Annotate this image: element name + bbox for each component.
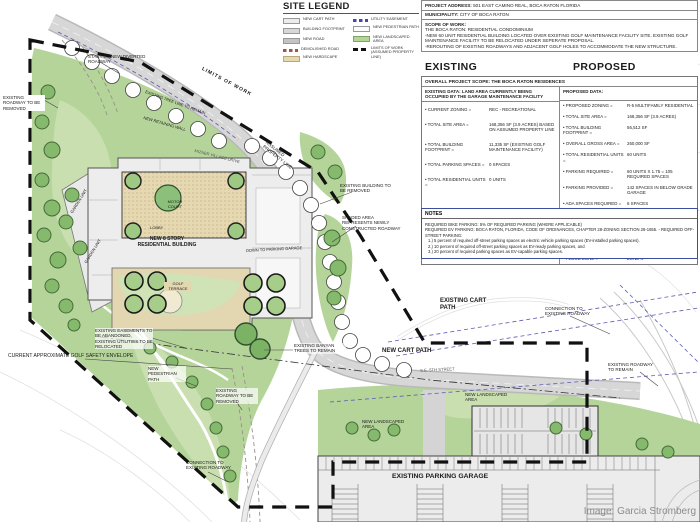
existing-header: EXISTING [421, 61, 565, 73]
legend-label: NEW LANDSCAPED AREA [373, 35, 419, 44]
label-start-of-new-diverted-roadway: START OF NEW DIVERTED ROADWAY [88, 54, 146, 65]
site-plan-sheet: START OF NEW DIVERTED ROADWAY EXISTING R… [0, 0, 700, 522]
scope-line-3: -REROUTING OF EXISTING ROADWAYS AND ADJA… [425, 44, 694, 50]
label-existing-roadway-removed-bottom: EXISTING ROADWAY TO BE REMOVED [216, 388, 258, 404]
row-label: • TOTAL RESIDENTIAL UNITS = [425, 177, 487, 188]
demolished-road-swatch [283, 49, 298, 52]
row-label: • TOTAL RESIDENTIAL UNITS = [563, 152, 625, 163]
label-new-landscaped-area-2: NEW LANDSCAPED AREA [362, 419, 408, 430]
legend-item-building-footprint: BUILDING FOOTPRINT [283, 27, 349, 34]
label-existing-parking-garage: EXISTING PARKING GARAGE [392, 473, 488, 481]
utility-easement-swatch [353, 19, 368, 22]
table-row: • TOTAL RESIDENTIAL UNITS =60 UNITS [560, 150, 697, 166]
row-label: • PROPOSED ZONING = [563, 103, 625, 109]
row-value: 260,000 SF [625, 141, 694, 147]
table-row: • OVERALL GROSS AREA =260,000 SF [560, 139, 697, 150]
label-lobby: LOBBY [150, 226, 163, 231]
table-row: • TOTAL PARKING SPACES =0 SPACES [422, 157, 559, 172]
overall-scope-row: OVERALL PROJECT SCOPE: THE BOCA RATON RE… [422, 77, 697, 87]
row-label: • TOTAL SITE AREA = [425, 122, 487, 133]
label-residential-building: NEW 8 STORY RESIDENTIAL BUILDING [136, 237, 198, 249]
legend-label: NEW ROAD [303, 37, 324, 41]
legend-label: NEW CART PATH [303, 17, 335, 21]
row-label: • TOTAL PARKING SPACES = [425, 162, 487, 168]
legend-column-2: UTILITY EASEMENT NEW PEDESTRIAN PATH NEW… [353, 17, 419, 62]
municipality-row: MUNICIPALITY: CITY OF BOCA RATON [421, 11, 698, 21]
row-value: 168,356 SF (3.9 ACRES) BASED ON ASSUMED … [487, 122, 556, 133]
new-road-swatch [283, 38, 300, 44]
legend-label: DEMOLISHED ROAD [301, 47, 339, 51]
notes-line: REQUIRED EV PARKING: BOCA RATON, FLORIDA… [422, 227, 697, 238]
project-address-row: PROJECT ADDRESS: 501 EAST CAMINO REAL, B… [421, 0, 698, 11]
row-label: • TOTAL BUILDING FOOTPRINT = [425, 142, 487, 153]
label-golf-terrace: GOLF TERRACE [164, 282, 192, 291]
table-row: • TOTAL RESIDENTIAL UNITS =0 UNITS [422, 172, 559, 192]
label-existing-cart-path: EXISTING CART PATH [440, 298, 494, 312]
row-value: 60 UNITS X 1.75 = 105 REQUIRED SPACES [625, 169, 694, 180]
proposed-data-header: PROPOSED DATA: [560, 87, 697, 101]
scope-line-2: -NEW 60 UNIT RESIDENTIAL BUILDING LOCATE… [425, 33, 694, 44]
comparison-headers: EXISTING PROPOSED [421, 61, 698, 73]
row-value: 142 SPACES IN BELOW GRADE GARAGE [625, 185, 694, 196]
site-legend-title: SITE LEGEND [283, 1, 419, 14]
table-row: • TOTAL SITE AREA =168,356 SF (3.9 ACRES… [422, 117, 559, 137]
row-label: • CURRENT ZONING = [425, 107, 487, 113]
label-connection-existing-roadway-right: CONNECTION TO EXISTING ROADWAY [545, 306, 597, 317]
legend-item-new-road: NEW ROAD [283, 37, 349, 44]
label-existing-roadway-removed-left: EXISTING ROADWAY TO BE REMOVED [3, 95, 45, 111]
row-label: • PARKING REQUIRED = [563, 169, 625, 180]
row-label: • OVERALL GROSS AREA = [563, 141, 625, 147]
label-new-cart-path: NEW CART PATH [382, 348, 431, 355]
building-footprint-swatch [283, 28, 300, 34]
new-landscaped-area-swatch [353, 36, 370, 42]
table-row: • PROPOSED ZONING =R-5 MULTIFAMILY RESID… [560, 101, 697, 112]
legend-item-limits-of-work: LIMITS OF WORK (ASSUMED PROPERTY LINE) [353, 46, 419, 59]
legend-label: NEW PEDESTRIAN PATH [373, 25, 419, 29]
legend-label: LIMITS OF WORK (ASSUMED PROPERTY LINE) [371, 46, 419, 59]
table-row: • TOTAL SITE AREA =168,356 SF (3.9 ACRES… [560, 111, 697, 122]
label-new-landscaped-area-1: NEW LANDSCAPED AREA [465, 392, 511, 403]
label-new-pedestrian-path: NEW PEDESTRIAN PATH [148, 366, 186, 382]
project-address-label: PROJECT ADDRESS: [425, 3, 472, 8]
row-value: REC - RECREATIONAL [487, 107, 556, 113]
existing-data-header: EXISTING DATA: LAND AREA CURRENTLY BEING… [422, 87, 559, 103]
table-row: • CURRENT ZONING =REC - RECREATIONAL [422, 102, 559, 117]
legend-label: UTILITY EASEMENT [371, 17, 408, 21]
scope-of-work-row: SCOPE OF WORK: THE BOCA RATON: RESIDENTI… [421, 20, 698, 52]
project-address-value: 501 EAST CAMINO REAL, BOCA RATON FLORIDA [473, 3, 580, 8]
legend-item-demolished-road: DEMOLISHED ROAD [283, 47, 349, 52]
row-value: 168,356 SF (3.9 ACRES) [625, 114, 694, 120]
row-value: 60 UNITS [625, 152, 694, 163]
label-connection-existing-roadway-bottom: CONNECTION TO EXISTING ROADWAY [186, 460, 234, 471]
site-legend: SITE LEGEND NEW CART PATH BUILDING FOOTP… [283, 1, 419, 62]
label-motor-court: MOTOR COURT [160, 200, 190, 209]
label-existing-roadway-remain: EXISTING ROADWAY TO REMAIN [608, 362, 656, 373]
limits-of-work-swatch [353, 48, 368, 51]
row-label: • TOTAL BUILDING FOOTPRINT = [563, 125, 625, 136]
legend-item-utility-easement: UTILITY EASEMENT [353, 17, 419, 22]
label-golf-safety-envelope: CURRENT APPROXIMATE GOLF SAFETY ENVELOPE [8, 354, 133, 360]
legend-item-new-pedestrian-path: NEW PEDESTRIAN PATH [353, 25, 419, 32]
row-value: 56,512 SF [625, 125, 694, 136]
legend-label: BUILDING FOOTPRINT [303, 27, 345, 31]
new-pedestrian-path-swatch [353, 26, 370, 32]
table-row: • PARKING REQUIRED =60 UNITS X 1.75 = 10… [560, 166, 697, 182]
municipality-value: CITY OF BOCA RATON [460, 12, 509, 17]
legend-item-new-cart-path: NEW CART PATH [283, 17, 349, 24]
legend-item-new-landscaped-area: NEW LANDSCAPED AREA [353, 35, 419, 44]
row-label: • ADA SPACES REQUIRED = [563, 201, 625, 207]
label-banyan-trees: EXISTING BANYAN TREES TO REMAIN [294, 343, 346, 354]
legend-item-new-hardscape: NEW HARDSCAPE [283, 55, 349, 62]
notes-header: NOTES [422, 209, 697, 219]
garage-driveway [423, 390, 445, 456]
table-row: • TOTAL BUILDING FOOTPRINT =56,512 SF [560, 122, 697, 138]
row-value: 0 SPACES [487, 162, 556, 168]
row-label: • TOTAL SITE AREA = [563, 114, 625, 120]
notes-box: NOTES REQUIRED BIKE PARKING: 5% OF REQUI… [421, 208, 698, 259]
row-value: 6 SPACES [625, 201, 694, 207]
municipality-label: MUNICIPALITY: [425, 12, 459, 17]
legend-label: NEW HARDSCAPE [303, 55, 337, 59]
new-cart-path-swatch [283, 18, 300, 24]
row-value: 0 UNITS [487, 177, 556, 188]
image-credit: Image: Garcia Stromberg [584, 506, 696, 517]
row-label: • PARKING PROVIDED = [563, 185, 625, 196]
legend-column-1: NEW CART PATH BUILDING FOOTPRINT NEW ROA… [283, 17, 349, 62]
new-hardscape-swatch [283, 56, 300, 62]
label-shaded-area: SHADED AREA REPRESENTS NEWLY CONSTRUCTED… [342, 215, 402, 231]
proposed-header: PROPOSED [565, 61, 636, 73]
row-value: 11,335 SF (EXISTING GOLF MAINTENANCE FAC… [487, 142, 556, 153]
table-row: • TOTAL BUILDING FOOTPRINT =11,335 SF (E… [422, 137, 559, 157]
table-row: • PARKING PROVIDED =142 SPACES IN BELOW … [560, 182, 697, 198]
row-value: R-5 MULTIFAMILY RESIDENTIAL [625, 103, 694, 109]
label-easements: EXISTING EASEMENTS TO BE ABANDONED, EXIS… [95, 328, 153, 349]
scope-label: SCOPE OF WORK: [425, 22, 466, 27]
label-existing-building-removed: EXISTING BUILDING TO BE REMOVED [340, 183, 392, 194]
